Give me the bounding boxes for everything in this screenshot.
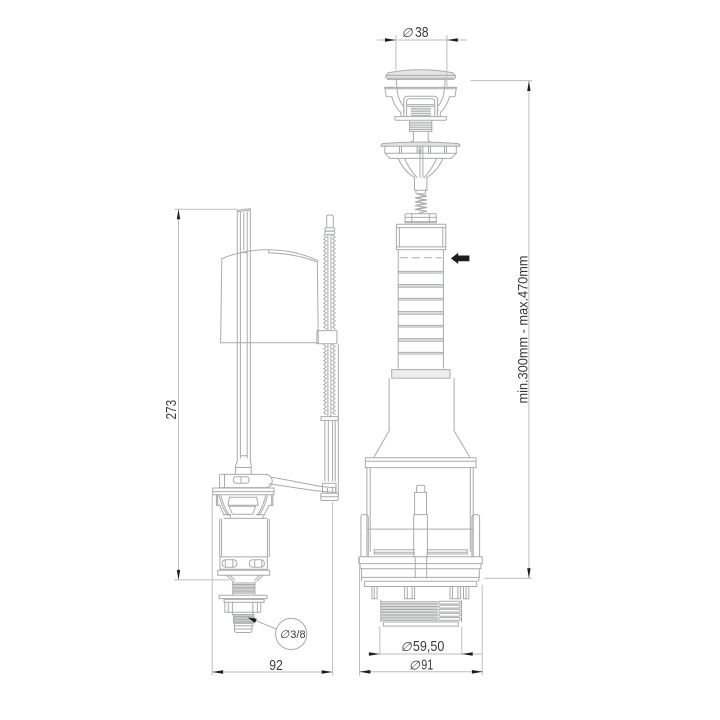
svg-text:min.300mm - max.470mm: min.300mm - max.470mm: [515, 256, 530, 404]
svg-text:92: 92: [269, 658, 283, 674]
svg-text:59,50: 59,50: [413, 639, 445, 655]
svg-text:∅: ∅: [402, 26, 414, 40]
svg-text:∅: ∅: [409, 659, 421, 673]
svg-text:91: 91: [421, 658, 433, 674]
svg-text:∅: ∅: [280, 629, 290, 641]
svg-text:3/8: 3/8: [290, 629, 305, 641]
svg-text:38: 38: [415, 25, 429, 41]
svg-text:∅: ∅: [401, 640, 413, 654]
svg-text:273: 273: [164, 400, 180, 420]
